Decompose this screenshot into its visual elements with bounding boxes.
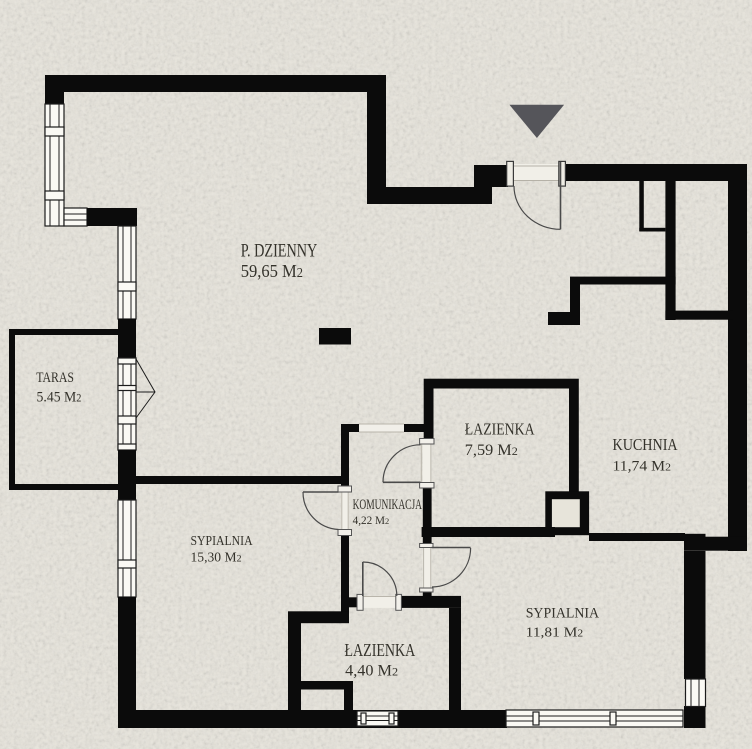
svg-text:11,81 M2: 11,81 M2	[526, 625, 583, 640]
svg-text:P. DZIENNY: P. DZIENNY	[241, 240, 318, 261]
svg-text:KOMUNIKACJA: KOMUNIKACJA	[353, 497, 423, 513]
svg-text:59,65 M2: 59,65 M2	[241, 261, 303, 281]
svg-text:7,59 M2: 7,59 M2	[465, 442, 518, 459]
svg-text:ŁAZIENKA: ŁAZIENKA	[465, 420, 535, 439]
svg-text:4,40 M2: 4,40 M2	[345, 662, 398, 679]
svg-text:15,30 M2: 15,30 M2	[191, 549, 242, 564]
svg-text:11,74 M2: 11,74 M2	[613, 458, 672, 474]
svg-text:SYPIALNIA: SYPIALNIA	[191, 533, 253, 548]
svg-text:5.45 M2: 5.45 M2	[37, 388, 82, 405]
svg-text:TARAS: TARAS	[36, 370, 74, 386]
svg-text:ŁAZIENKA: ŁAZIENKA	[345, 640, 416, 660]
svg-text:4,22 M2: 4,22 M2	[353, 514, 390, 527]
svg-text:KUCHNIA: KUCHNIA	[613, 435, 678, 454]
svg-text:SYPIALNIA: SYPIALNIA	[526, 605, 600, 621]
